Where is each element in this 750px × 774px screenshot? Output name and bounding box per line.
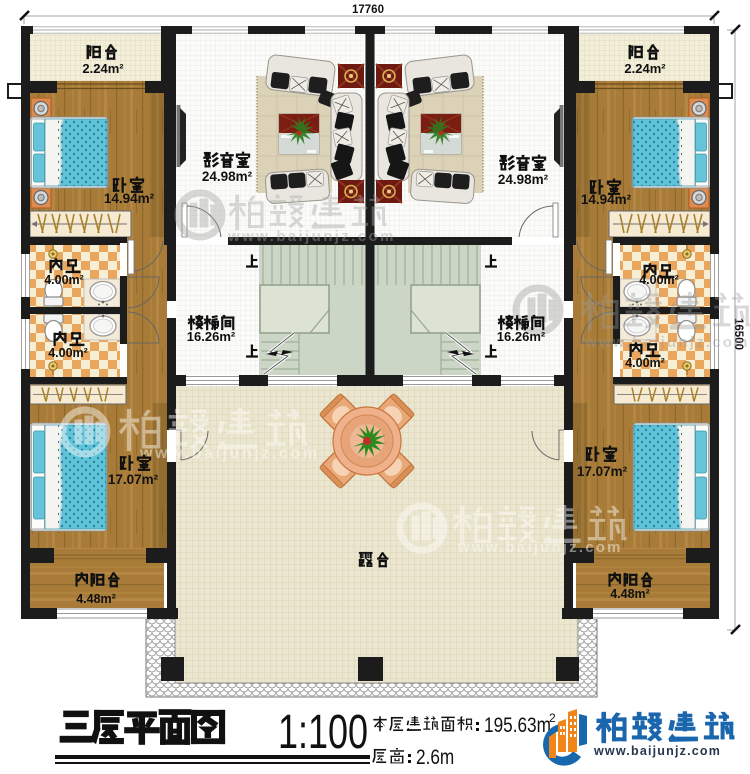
svg-text:14.94m²: 14.94m²: [104, 191, 155, 206]
svg-text:195.63m: 195.63m: [484, 715, 551, 738]
svg-text:2: 2: [549, 711, 556, 725]
svg-text:17760: 17760: [352, 4, 384, 16]
svg-text:2.24m²: 2.24m²: [624, 61, 666, 76]
svg-text:24.98m²: 24.98m²: [202, 169, 253, 184]
svg-text:1:100: 1:100: [278, 705, 368, 758]
svg-text:16.26m²: 16.26m²: [497, 329, 546, 344]
svg-text:4.48m²: 4.48m²: [610, 587, 650, 601]
svg-text:www.baijunjz.com: www.baijunjz.com: [227, 228, 396, 245]
svg-text:www.baijunjz.com: www.baijunjz.com: [593, 744, 721, 758]
svg-text:17.07m²: 17.07m²: [108, 472, 159, 487]
svg-text:www.baijunjz.com: www.baijunjz.com: [139, 445, 320, 462]
svg-text:www.baijunjz.com: www.baijunjz.com: [584, 334, 750, 351]
svg-text:4.00m²: 4.00m²: [625, 356, 665, 370]
svg-text:www.baijunjz.com: www.baijunjz.com: [457, 539, 623, 556]
svg-text:14.94m²: 14.94m²: [581, 192, 632, 207]
svg-text:24.98m²: 24.98m²: [498, 172, 549, 187]
svg-text:4.00m²: 4.00m²: [639, 273, 679, 287]
svg-text:4.00m²: 4.00m²: [48, 346, 88, 360]
svg-text:16.26m²: 16.26m²: [187, 329, 236, 344]
svg-text:2.6m: 2.6m: [416, 747, 454, 770]
svg-text:4.00m²: 4.00m²: [44, 273, 84, 287]
svg-text:4.48m²: 4.48m²: [76, 592, 116, 606]
svg-text:2.24m²: 2.24m²: [82, 61, 124, 76]
svg-text:17.07m²: 17.07m²: [577, 464, 628, 479]
